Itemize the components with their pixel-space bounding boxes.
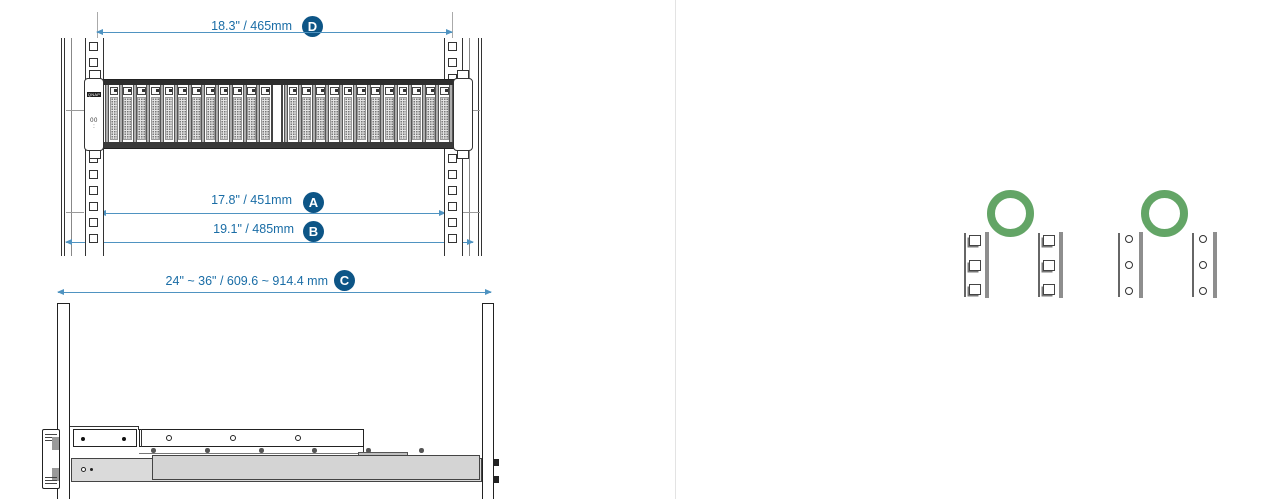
bay-latch-knob (390, 89, 393, 92)
drive-bay (133, 85, 147, 142)
square-mount-hole (448, 154, 457, 163)
bay-latch-knob (403, 89, 406, 92)
bay-latch (261, 87, 270, 95)
power-button-mark: : (85, 124, 103, 131)
bay-face (426, 85, 436, 142)
round-mount-hole (1125, 261, 1133, 269)
drive-bay (298, 85, 312, 142)
square-mount-hole (1043, 284, 1055, 295)
bay-face (150, 85, 160, 142)
bay-latch-knob (224, 89, 227, 92)
rack-mount-dimension-diagram: QNAP 00 : 18.3" / 465mm D 17.8" / 451mm … (0, 0, 1274, 499)
drive-bay (284, 85, 298, 142)
bay-latch (330, 87, 339, 95)
bay-latch-knob (445, 89, 448, 92)
bay-vent-mesh (165, 97, 174, 140)
bay-latch-knob (348, 89, 351, 92)
rail-hole (295, 435, 301, 441)
rail-screw (151, 448, 156, 453)
bay-vent-mesh (289, 97, 298, 140)
rail-screw (419, 448, 424, 453)
bay-latch (206, 87, 215, 95)
bay-face (219, 85, 229, 142)
square-mount-hole (448, 218, 457, 227)
bay-latch-knob (238, 89, 241, 92)
post-edge-line (1192, 233, 1194, 297)
bay-vent-mesh (302, 97, 311, 140)
rail-inner-member (73, 429, 137, 447)
drive-bay (146, 85, 160, 142)
bay-face (384, 85, 394, 142)
bay-latch-knob (335, 89, 338, 92)
bay-latch (110, 87, 119, 95)
square-mount-hole (448, 186, 457, 195)
bay-vent-mesh (440, 97, 449, 140)
post-rail-bar (1139, 232, 1144, 298)
bay-face (137, 85, 147, 142)
bay-latch-knob (156, 89, 159, 92)
square-mount-hole (1043, 260, 1055, 271)
drive-bay-array (105, 85, 453, 142)
chassis-bottom-edge (104, 142, 454, 148)
bay-face (123, 85, 133, 142)
bay-latch-knob (197, 89, 200, 92)
bay-face (357, 85, 367, 142)
post-hole-column (1196, 235, 1210, 295)
bay-latch (165, 87, 174, 95)
right-ear (453, 78, 473, 151)
bay-vent-mesh (192, 97, 201, 140)
square-mount-hole (89, 202, 98, 211)
post-edge-line (964, 233, 966, 297)
drive-bay (353, 85, 367, 142)
rail-hole (166, 435, 172, 441)
square-mount-hole (448, 58, 457, 67)
panel-divider (675, 0, 676, 499)
bay-vent-mesh (385, 97, 394, 140)
drive-bay (408, 85, 422, 142)
bay-latch (123, 87, 132, 95)
bay-face (247, 85, 257, 142)
bay-latch (178, 87, 187, 95)
round-mount-hole (1125, 235, 1133, 243)
bay-face (178, 85, 188, 142)
rail-rivet (122, 437, 126, 441)
post-rail-bar (985, 232, 990, 298)
bay-vent-mesh (220, 97, 229, 140)
drive-bay (229, 85, 243, 142)
dimension-c-label: 24" ~ 36" / 609.6 ~ 914.4 mm (140, 274, 328, 288)
bay-vent-mesh (316, 97, 325, 140)
bay-latch-knob (142, 89, 145, 92)
bay-face (260, 85, 270, 142)
drive-bay (174, 85, 188, 142)
bay-face (343, 85, 353, 142)
square-mount-hole (89, 170, 98, 179)
drive-bay (367, 85, 381, 142)
bay-vent-mesh (344, 97, 353, 140)
bay-face (398, 85, 408, 142)
server-chassis-front (103, 79, 455, 149)
bay-latch (233, 87, 242, 95)
bay-face (316, 85, 326, 142)
post-edge-line (1118, 233, 1120, 297)
rail-rivet (81, 437, 85, 441)
bay-latch-knob (169, 89, 172, 92)
rail-screw (205, 448, 210, 453)
rear-post-side (482, 303, 494, 499)
bay-vent-mesh (399, 97, 408, 140)
rail-screw (259, 448, 264, 453)
right-ear-bottom-tab (457, 150, 469, 159)
bay-latch-knob (114, 89, 117, 92)
slide-rail-extension (152, 455, 480, 480)
drive-bay (188, 85, 202, 142)
post-hole-column (1122, 235, 1136, 295)
bay-latch (220, 87, 229, 95)
bay-vent-mesh (178, 97, 187, 140)
bay-vent-mesh (412, 97, 421, 140)
square-mount-hole (89, 234, 98, 243)
bay-vent-mesh (206, 97, 215, 140)
bay-latch-knob (376, 89, 379, 92)
square-mount-hole (89, 42, 98, 51)
bay-vent-mesh (261, 97, 270, 140)
dimension-c-badge: C (334, 270, 355, 291)
bay-latch (151, 87, 160, 95)
rail-hole (230, 435, 236, 441)
bay-face (302, 85, 312, 142)
rail-flange-line (139, 453, 361, 454)
bay-face (288, 85, 298, 142)
post-hole-column (1042, 235, 1056, 295)
bay-vent-mesh (247, 97, 256, 140)
bay-latch-knob (183, 89, 186, 92)
bay-vent-mesh (123, 97, 132, 140)
bay-latch (412, 87, 421, 95)
post-rail-bar (1213, 232, 1218, 298)
bay-vent-mesh (426, 97, 435, 140)
bay-latch-knob (266, 89, 269, 92)
slide-rail-hole-small (90, 468, 93, 471)
round-hole-post (1192, 233, 1217, 297)
rack-type-round-hole (1112, 190, 1222, 300)
ok-ring-icon (1141, 190, 1188, 237)
bay-latch (371, 87, 380, 95)
square-mount-hole (448, 234, 457, 243)
bay-latch (440, 87, 449, 95)
ok-ring-icon (987, 190, 1034, 237)
bay-vent-mesh (151, 97, 160, 140)
post-hole-column (968, 235, 982, 295)
bay-vent-mesh (233, 97, 242, 140)
drive-bay (394, 85, 408, 142)
drive-bay (380, 85, 394, 142)
bay-latch (344, 87, 353, 95)
bay-face (371, 85, 381, 142)
dimension-c-arrow (58, 292, 491, 293)
bay-latch-knob (417, 89, 420, 92)
drive-bay (105, 85, 119, 142)
left-ear-bottom-tab (89, 150, 101, 159)
rear-mount-tab (494, 459, 499, 466)
round-mount-hole (1199, 261, 1207, 269)
bay-group-divider (271, 85, 283, 142)
post-edge-line (1038, 233, 1040, 297)
bay-latch (385, 87, 394, 95)
square-mount-hole (969, 284, 981, 295)
rail-screw (366, 448, 371, 453)
bay-face (192, 85, 202, 142)
chassis-side-top-line (63, 426, 139, 427)
bay-face (205, 85, 215, 142)
round-hole-post (1118, 233, 1143, 297)
drive-bay (339, 85, 353, 142)
slide-rail-hole (81, 467, 86, 472)
bay-face (439, 85, 449, 142)
rail-junction-line (141, 429, 142, 447)
post-rail-bar (1059, 232, 1064, 298)
square-mount-hole (448, 170, 457, 179)
drive-bay (215, 85, 229, 142)
square-mount-hole (89, 58, 98, 67)
square-hole-post (964, 233, 989, 297)
drive-bay (325, 85, 339, 142)
bay-vent-mesh (357, 97, 366, 140)
drive-bay (422, 85, 436, 142)
bay-latch (192, 87, 201, 95)
bay-latch (357, 87, 366, 95)
bay-latch-knob (431, 89, 434, 92)
round-mount-hole (1199, 287, 1207, 295)
drive-bay (160, 85, 174, 142)
bay-latch-knob (128, 89, 131, 92)
bay-vent-mesh (137, 97, 146, 140)
bay-latch-knob (293, 89, 296, 92)
bay-face (109, 85, 119, 142)
square-mount-hole (448, 202, 457, 211)
bay-latch (399, 87, 408, 95)
front-bracket-side (42, 429, 60, 489)
square-mount-hole (1043, 235, 1055, 246)
round-mount-hole (1125, 287, 1133, 295)
square-mount-hole (89, 218, 98, 227)
qnap-logo: QNAP (87, 92, 101, 97)
bay-latch (289, 87, 298, 95)
bay-latch (426, 87, 435, 95)
bay-face (164, 85, 174, 142)
rack-type-square-hole (958, 190, 1068, 300)
square-mount-hole (448, 42, 457, 51)
bay-latch (302, 87, 311, 95)
drive-bay (312, 85, 326, 142)
bay-latch-knob (211, 89, 214, 92)
bay-latch (316, 87, 325, 95)
drive-bay (435, 85, 449, 142)
bracket-latch (52, 437, 59, 450)
bay-latch-knob (307, 89, 310, 92)
bay-latch-knob (252, 89, 255, 92)
bay-vent-mesh (110, 97, 119, 140)
rear-mount-tab (494, 476, 499, 483)
bay-face (233, 85, 243, 142)
rail-outer-member (139, 429, 364, 447)
left-ear: QNAP 00 : (84, 78, 104, 151)
bay-face (329, 85, 339, 142)
drive-bay (256, 85, 270, 142)
bay-face (412, 85, 422, 142)
round-mount-hole (1199, 235, 1207, 243)
square-mount-hole (89, 186, 98, 195)
bay-latch (247, 87, 256, 95)
drive-bay (119, 85, 133, 142)
bay-latch (137, 87, 146, 95)
square-mount-hole (969, 235, 981, 246)
drive-bay (243, 85, 257, 142)
bay-latch-knob (362, 89, 365, 92)
square-mount-hole (969, 260, 981, 271)
bay-vent-mesh (330, 97, 339, 140)
drive-bay (201, 85, 215, 142)
bay-vent-mesh (371, 97, 380, 140)
square-hole-post (1038, 233, 1063, 297)
bay-latch-knob (321, 89, 324, 92)
rail-screw (312, 448, 317, 453)
